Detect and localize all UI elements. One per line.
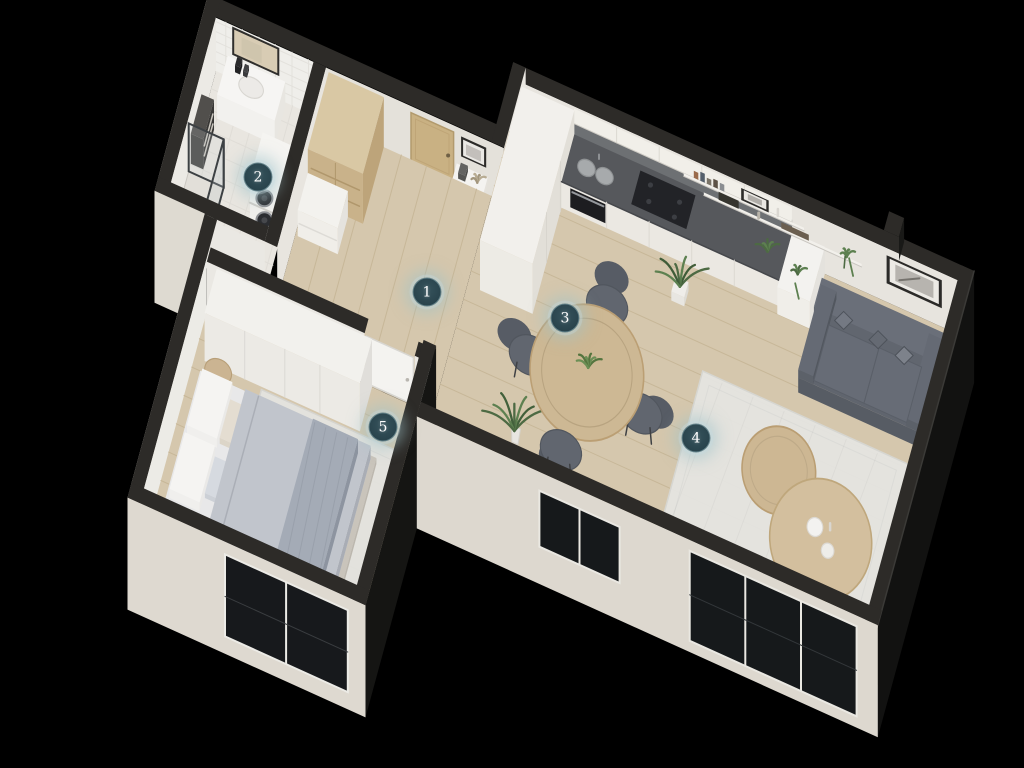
floorplan-illustration [0, 0, 1024, 768]
floorplan-stage: 1 2 3 4 5 [0, 0, 1024, 768]
marker-label: 2 [254, 170, 263, 184]
room-marker-bathroom[interactable]: 2 [244, 163, 273, 192]
room-marker-living[interactable]: 4 [682, 424, 711, 453]
marker-label: 1 [423, 285, 432, 299]
room-marker-kitchen[interactable]: 3 [551, 304, 580, 333]
marker-label: 3 [561, 311, 570, 325]
marker-label: 4 [692, 431, 701, 445]
room-marker-hallway[interactable]: 1 [413, 278, 442, 307]
marker-label: 5 [379, 420, 388, 434]
room-marker-bedroom[interactable]: 5 [369, 413, 398, 442]
